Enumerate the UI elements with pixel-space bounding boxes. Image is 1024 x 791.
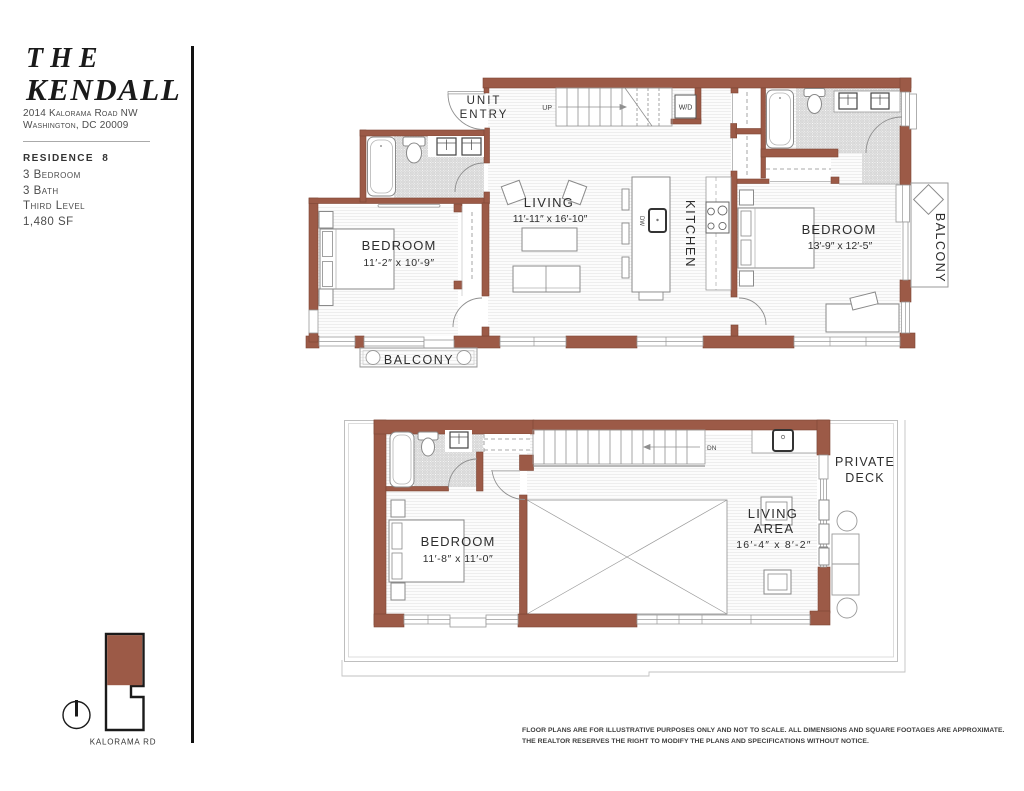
svg-text:W/D: W/D [679, 105, 693, 112]
svg-text:BALCONY: BALCONY [384, 353, 454, 367]
svg-text:ENTRY: ENTRY [460, 109, 509, 121]
svg-text:AREA: AREA [754, 521, 795, 536]
svg-text:KALORAMA RD: KALORAMA RD [90, 738, 157, 747]
svg-text:PRIVATE: PRIVATE [835, 455, 895, 469]
svg-text:UNIT: UNIT [467, 95, 502, 107]
svg-text:UP: UP [542, 105, 552, 112]
svg-text:11′-2″ x 10′-9″: 11′-2″ x 10′-9″ [363, 257, 434, 269]
svg-text:BEDROOM: BEDROOM [421, 534, 496, 549]
svg-text:KITCHEN: KITCHEN [683, 200, 698, 268]
svg-text:DN: DN [707, 445, 717, 452]
svg-text:DECK: DECK [845, 471, 885, 485]
svg-text:16′-4″ x 8′-2″: 16′-4″ x 8′-2″ [736, 539, 811, 551]
svg-text:DW: DW [638, 216, 644, 226]
svg-text:11′-8″ x 11′-0″: 11′-8″ x 11′-0″ [423, 553, 493, 565]
svg-text:LIVING: LIVING [524, 195, 574, 210]
svg-text:BEDROOM: BEDROOM [362, 238, 437, 253]
svg-text:13′-9″ x 12′-5″: 13′-9″ x 12′-5″ [808, 240, 873, 252]
svg-text:BALCONY: BALCONY [933, 213, 947, 283]
svg-text:11′-11″ x 16′-10″: 11′-11″ x 16′-10″ [513, 213, 588, 225]
svg-text:BEDROOM: BEDROOM [802, 222, 877, 237]
svg-text:LIVING: LIVING [748, 506, 798, 521]
